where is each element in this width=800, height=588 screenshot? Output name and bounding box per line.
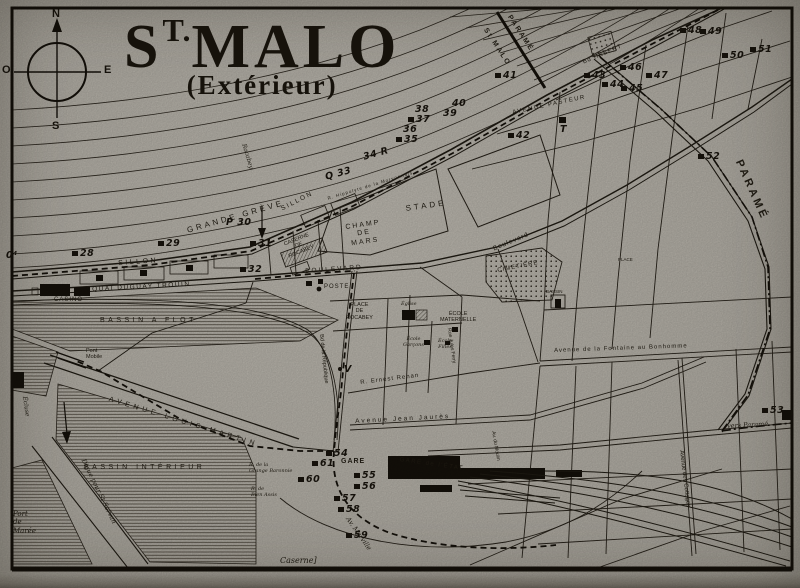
label-gare: GARE bbox=[341, 458, 365, 466]
label-ecole-maternelle: ÉCOLE MATERNELLE bbox=[440, 311, 476, 324]
label-bien-assis: R. de Bien Assis bbox=[251, 487, 277, 499]
poi-marker-39: 39 bbox=[443, 108, 457, 119]
map-title: ST.MALO (Extérieur) bbox=[124, 12, 400, 101]
poi-marker-59: 59 bbox=[346, 530, 368, 541]
poi-marker-32: 32 bbox=[240, 264, 262, 275]
photo-bottom-edge bbox=[0, 574, 800, 588]
poi-marker-55: 55 bbox=[354, 470, 376, 481]
poi-marker-48: 48 bbox=[680, 25, 702, 36]
poi-marker-56: 56 bbox=[354, 481, 376, 492]
compass-north: N bbox=[52, 8, 60, 20]
poi-marker-51: 51 bbox=[750, 44, 772, 55]
label-ecole-garcons: École Garçons bbox=[403, 337, 424, 349]
label-bassin-interieur: BASSIN INTÉRIEUR bbox=[84, 464, 205, 472]
label-bassin-a-flot: BASSIN A FLOT bbox=[100, 317, 197, 325]
label-port-de-maree: Port de Marée bbox=[13, 510, 36, 535]
poi-marker-31: 31 bbox=[250, 238, 272, 249]
compass-east: E bbox=[104, 64, 111, 76]
label-bassin-reservoir: BASSIN bbox=[546, 289, 563, 294]
title-sup: T. bbox=[162, 12, 191, 48]
poi-marker-35: 35 bbox=[396, 134, 418, 145]
poi-marker-47: 47 bbox=[646, 70, 668, 81]
poi-marker-46: 46 bbox=[620, 62, 642, 73]
poi-marker-58: 58 bbox=[338, 504, 360, 515]
poi-marker-60: 60 bbox=[298, 474, 320, 485]
label-casino: CASINO bbox=[54, 297, 83, 304]
poi-marker-0-4: 0⁴ bbox=[6, 250, 18, 261]
poi-marker-V: V bbox=[338, 364, 352, 375]
poi-marker-45: 45 bbox=[621, 83, 643, 94]
poi-marker-29: 29 bbox=[158, 238, 180, 249]
poi-marker-28: 28 bbox=[72, 248, 94, 259]
poi-marker-37: 37 bbox=[408, 114, 430, 125]
compass-west: O bbox=[2, 64, 11, 76]
label-poste: POSTE bbox=[324, 284, 349, 291]
poi-marker-57: 57 bbox=[334, 493, 356, 504]
stmalo-map: ST.MALO (Extérieur) N O E S GRANDE GRÈVE… bbox=[0, 0, 800, 588]
label-place: PLACE bbox=[618, 257, 633, 262]
label-grange-baronnie: R. de la Grange Baronnie bbox=[249, 463, 292, 475]
label-eglise: Église bbox=[401, 302, 417, 308]
poi-marker-41: 41 bbox=[495, 70, 517, 81]
poi-marker-30: P 30 bbox=[226, 217, 252, 228]
label-caserne: Caserne] bbox=[280, 556, 317, 565]
label-pont-mobile: Pont Mobile bbox=[86, 348, 102, 361]
poi-marker-38: 38 bbox=[415, 104, 429, 115]
poi-marker-36: 36 bbox=[403, 124, 417, 135]
label-place-de-rocabey: PLACE DE ROCABEY bbox=[346, 302, 373, 321]
poi-marker-52: 52 bbox=[698, 151, 720, 162]
poi-marker-40: 40 bbox=[452, 98, 466, 109]
poi-marker-61: 61 bbox=[312, 458, 334, 469]
poi-marker-T: T bbox=[560, 124, 567, 135]
poi-marker-42: 42 bbox=[508, 130, 530, 141]
compass-south: S bbox=[52, 120, 59, 132]
title-prefix: S bbox=[124, 13, 162, 81]
poi-marker-49: 49 bbox=[700, 26, 722, 37]
poi-marker-53: 53 bbox=[762, 405, 784, 416]
label-champ-de-mars: CHAMP DE MARS bbox=[345, 219, 383, 248]
poi-marker-50: 50 bbox=[722, 50, 744, 61]
